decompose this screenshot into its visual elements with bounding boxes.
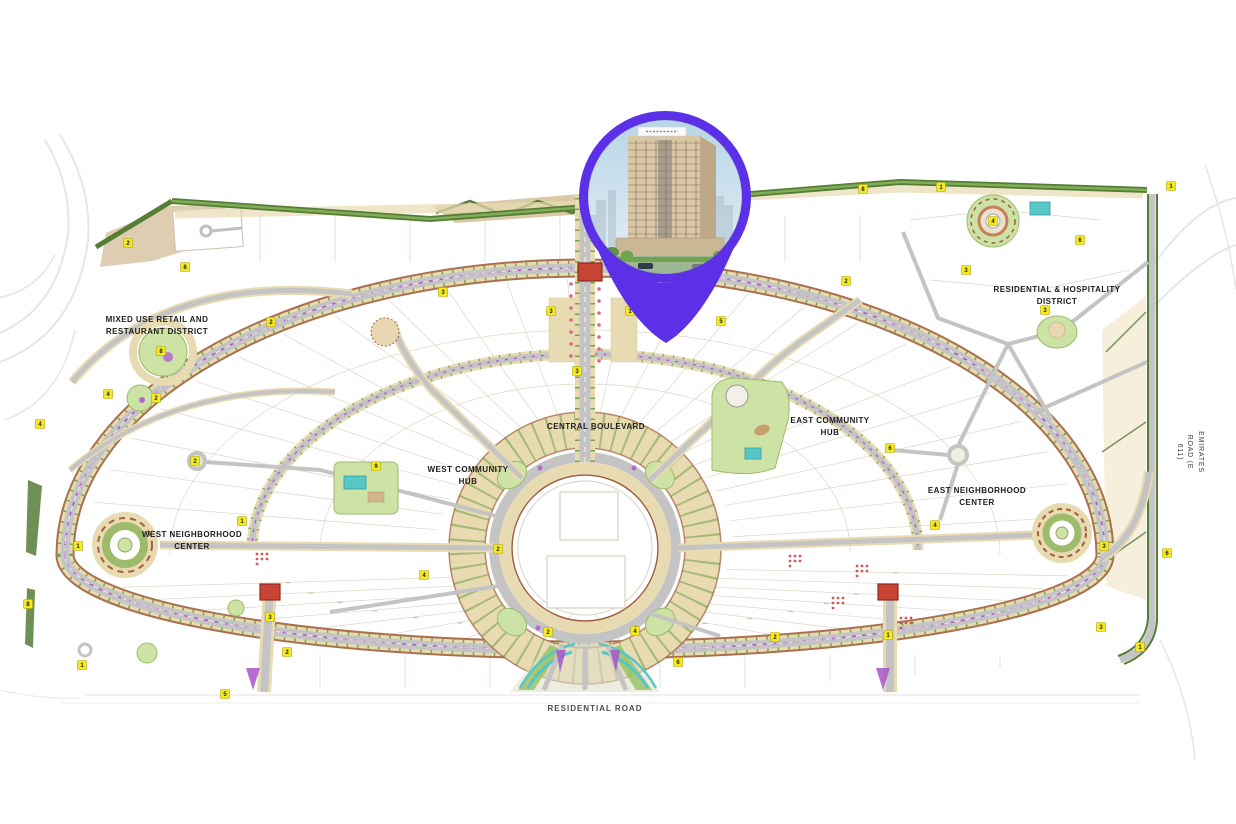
map-marker: 4 [631,627,640,636]
map-marker: 2 [544,628,553,637]
map-marker: 1 [937,183,946,192]
map-marker: 8 [181,263,190,272]
location-pin[interactable] [579,111,751,343]
map-marker: 4 [931,521,940,530]
roads [65,196,1149,692]
map-marker: 3 [266,613,275,622]
west-park [334,462,398,514]
map-marker: 8 [24,600,33,609]
map-marker: 2 [842,277,851,286]
map-marker: 3 [439,288,448,297]
map-marker: 1 [238,517,247,526]
top-right-park [967,195,1050,247]
east-park [712,378,789,474]
map-marker: 3 [1097,623,1106,632]
map-marker: 1 [74,542,83,551]
map-marker: 4 [989,217,998,226]
map-marker: 5 [221,690,230,699]
map-marker: 4 [104,390,113,399]
map-marker: 3 [1041,306,1050,315]
map-marker: 2 [124,239,133,248]
map-marker: 3 [962,266,971,275]
map-marker: 2 [267,318,276,327]
map-marker: 1 [78,661,87,670]
map-marker: 3 [547,307,556,316]
tower [616,127,724,260]
map-marker: 6 [674,658,683,667]
map-marker: 8 [859,185,868,194]
map-marker: 3 [1100,542,1109,551]
map-marker: 3 [573,367,582,376]
map-marker: 2 [771,633,780,642]
map-marker: 6 [1076,236,1085,245]
map-marker: 1 [1167,182,1176,191]
canvas: 2828424121815233315392424622813361643631… [0,0,1236,824]
map-marker: 2 [152,394,161,403]
map-marker: 1 [884,631,893,640]
map-marker: 6 [1163,549,1172,558]
map-marker: 1 [1136,643,1145,652]
map-marker: 9 [372,462,381,471]
map-marker: 2 [283,648,292,657]
map-marker: 2 [191,457,200,466]
master-plan-map: 2828424121815233315392424622813361643631… [0,0,1236,824]
map-marker: 4 [420,571,429,580]
map-marker: 8 [157,347,166,356]
map-marker: 4 [36,420,45,429]
map-marker: 6 [886,444,895,453]
map-marker: 5 [717,317,726,326]
map-marker: 2 [494,545,503,554]
